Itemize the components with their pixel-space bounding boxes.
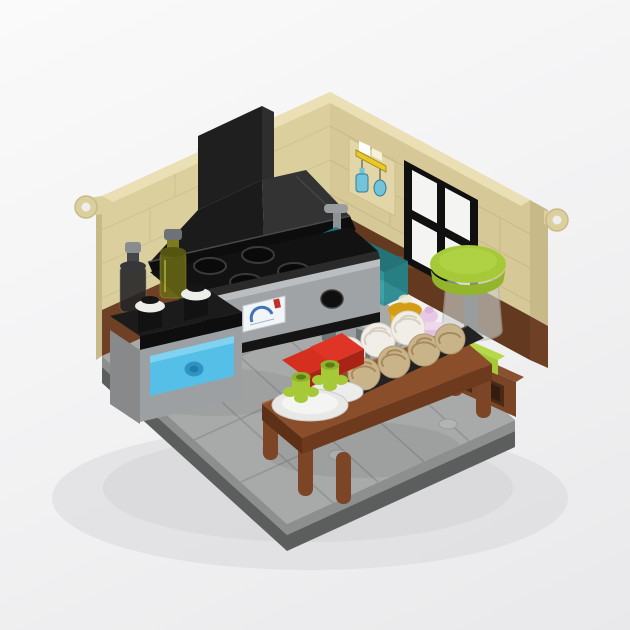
hood-chimney-side xyxy=(262,106,274,186)
left-wall-outer-edge xyxy=(96,196,102,360)
lego-kitchen-illustration xyxy=(0,0,630,630)
photo-stage xyxy=(0,0,630,630)
decal-bottle xyxy=(356,174,368,192)
lego-kitchen-photo xyxy=(0,0,630,630)
oven-knob-right xyxy=(321,290,343,308)
blender-lid xyxy=(430,245,506,295)
decal-spoon xyxy=(374,180,386,196)
